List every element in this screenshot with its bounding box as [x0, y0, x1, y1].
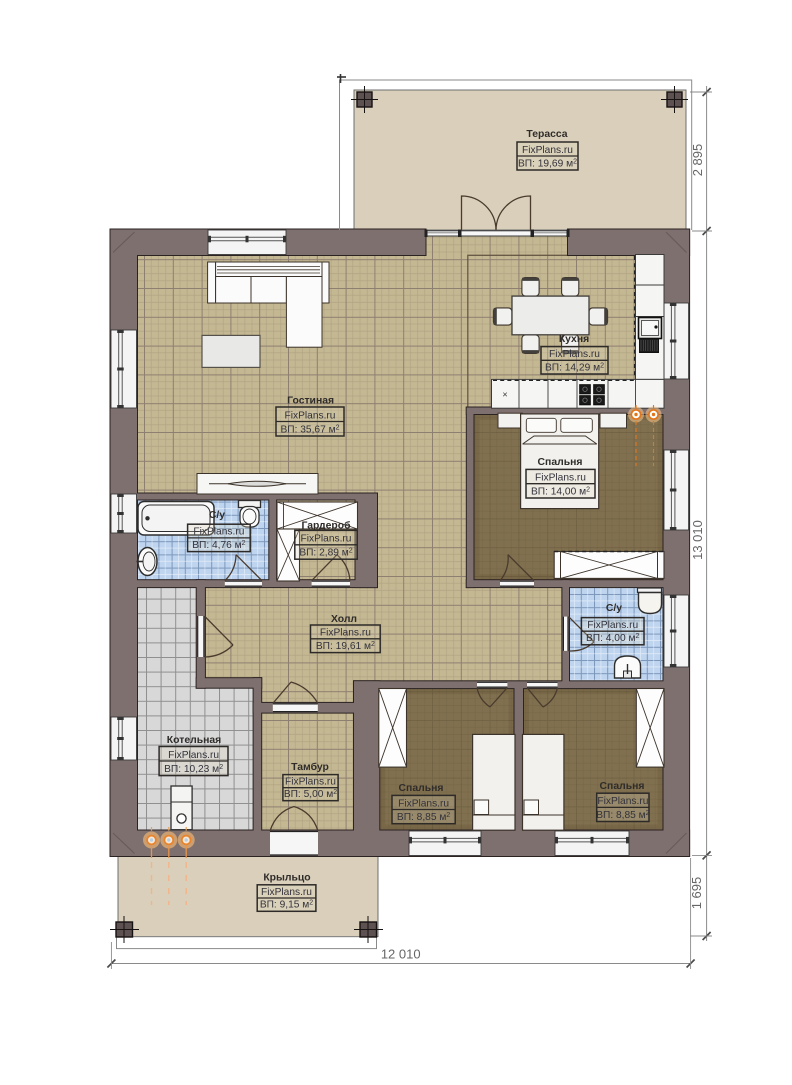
svg-text:×: ×	[502, 390, 507, 400]
svg-text:FixPlans.ru: FixPlans.ru	[587, 620, 638, 631]
svg-text:Котельная: Котельная	[167, 735, 221, 746]
svg-text:FixPlans.ru: FixPlans.ru	[522, 145, 573, 156]
svg-text:Спальня: Спальня	[399, 783, 444, 794]
svg-text:ВП: 2,89 м2: ВП: 2,89 м2	[299, 548, 352, 559]
svg-text:Терасса: Терасса	[526, 129, 567, 140]
svg-text:ВП: 4,76 м2: ВП: 4,76 м2	[192, 540, 245, 551]
svg-text:FixPlans.ru: FixPlans.ru	[320, 628, 371, 639]
svg-text:ВП: 5,00 м2: ВП: 5,00 м2	[284, 789, 337, 800]
svg-text:ВП: 4,00 м2: ВП: 4,00 м2	[586, 633, 639, 644]
svg-text:FixPlans.ru: FixPlans.ru	[261, 887, 312, 898]
svg-text:FixPlans.ru: FixPlans.ru	[285, 777, 336, 788]
svg-text:Спальня: Спальня	[538, 457, 583, 468]
svg-text:2 895: 2 895	[690, 144, 705, 177]
svg-text:С/у: С/у	[209, 510, 225, 521]
svg-text:ВП: 19,69 м2: ВП: 19,69 м2	[518, 158, 577, 169]
svg-text:ВП: 8,85 м2: ВП: 8,85 м2	[397, 812, 450, 823]
svg-text:ВП: 14,29 м2: ВП: 14,29 м2	[545, 362, 604, 373]
svg-text:FixPlans.ru: FixPlans.ru	[193, 527, 244, 538]
svg-text:FixPlans.ru: FixPlans.ru	[168, 750, 219, 761]
svg-text:FixPlans.ru: FixPlans.ru	[535, 473, 586, 484]
svg-text:Гостиная: Гостиная	[287, 396, 334, 407]
svg-text:FixPlans.ru: FixPlans.ru	[285, 410, 336, 421]
svg-text:FixPlans.ru: FixPlans.ru	[398, 798, 449, 809]
svg-text:12 010: 12 010	[381, 947, 421, 962]
svg-text:FixPlans.ru: FixPlans.ru	[597, 796, 648, 807]
svg-text:Крыльцо: Крыльцо	[263, 873, 310, 884]
svg-text:С/у: С/у	[606, 603, 622, 614]
svg-text:ВП: 14,00 м2: ВП: 14,00 м2	[531, 486, 590, 497]
svg-text:Тамбур: Тамбур	[291, 761, 329, 773]
svg-text:Кухня: Кухня	[559, 334, 589, 345]
svg-text:13 010: 13 010	[690, 520, 705, 560]
svg-text:ВП: 35,67 м2: ВП: 35,67 м2	[280, 424, 339, 435]
svg-text:Холл: Холл	[331, 614, 357, 625]
svg-text:Спальня: Спальня	[600, 781, 645, 792]
svg-text:ВП: 10,23 м2: ВП: 10,23 м2	[164, 764, 223, 775]
svg-text:1 695: 1 695	[689, 877, 704, 910]
svg-text:ВП: 9,15 м2: ВП: 9,15 м2	[260, 900, 313, 911]
svg-text:ВП: 8,85 м2: ВП: 8,85 м2	[596, 810, 649, 821]
svg-text:FixPlans.ru: FixPlans.ru	[301, 534, 352, 545]
svg-text:FixPlans.ru: FixPlans.ru	[549, 349, 600, 360]
svg-text:ВП: 19,61 м2: ВП: 19,61 м2	[316, 641, 375, 652]
